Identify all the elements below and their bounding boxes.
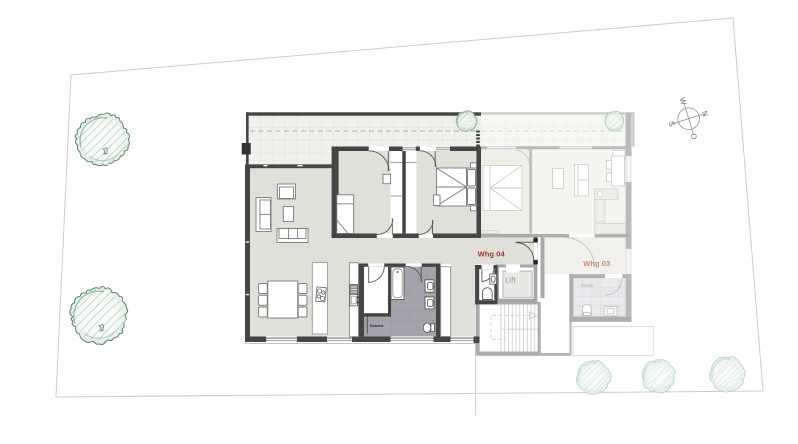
svg-text:Dusche: Dusche xyxy=(370,324,384,328)
svg-text:Whg 03: Whg 03 xyxy=(583,259,610,268)
svg-text:Lift: Lift xyxy=(505,278,516,285)
svg-text:Whg 04: Whg 04 xyxy=(478,249,506,258)
svg-text:Dusche: Dusche xyxy=(581,284,593,288)
